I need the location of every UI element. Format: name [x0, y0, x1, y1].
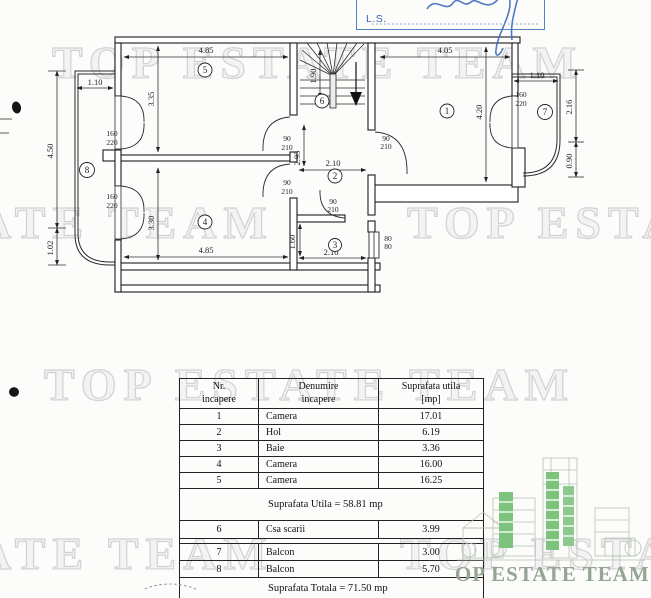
- room-number: 3: [333, 240, 338, 250]
- cell-name: Camera: [258, 409, 378, 424]
- cell-name: Csa scarii: [258, 521, 378, 538]
- table-header-row: Nr.incapere Denumireincapere Suprafata u…: [180, 378, 483, 409]
- cell-name: Hol: [258, 425, 378, 440]
- floor-plan: 4.85 4.05 1.10 1.10 4.85 2.10 2.10 3.35 …: [0, 0, 651, 350]
- total-text: Suprafata Totala = 71.50 mp: [268, 583, 388, 594]
- room-number: 5: [203, 65, 208, 75]
- header-denumire: Denumireincapere: [258, 379, 378, 408]
- cell-nr: 3: [180, 441, 258, 456]
- window-size-label: 220: [515, 99, 527, 108]
- cell-nr: 1: [180, 409, 258, 424]
- dim-label: 4.50: [45, 144, 55, 159]
- door-size-label: 90: [283, 134, 291, 143]
- dim-label: 1.10: [530, 70, 545, 80]
- total-band: Suprafata Totala = 71.50 mp: [180, 578, 483, 598]
- dim-label: 4.85: [199, 45, 214, 55]
- table-row: 1 Camera 17.01: [180, 409, 483, 425]
- room-number: 8: [85, 165, 90, 175]
- dim-label: 1.02: [45, 241, 55, 256]
- dim-label: 4.05: [438, 45, 453, 55]
- ls-stamp-box: L.S.: [356, 0, 545, 30]
- window-size-label: 160: [106, 129, 118, 138]
- door-size-label: 210: [380, 142, 392, 151]
- table-row: 7 Balcon 3.00: [180, 543, 483, 561]
- door-size-label: 210: [281, 187, 293, 196]
- dimension-labels: 4.85 4.05 1.10 1.10 4.85 2.10 2.10 3.35 …: [45, 45, 574, 257]
- room-number: 6: [320, 96, 325, 106]
- window-openings: [115, 96, 518, 258]
- room-number: 2: [333, 171, 338, 181]
- cell-nr: 7: [180, 544, 258, 560]
- cell-nr: 5: [180, 473, 258, 488]
- small-window-80x80: [369, 232, 379, 258]
- door-size-label: 210: [327, 205, 339, 214]
- dim-label: 0.90: [564, 154, 574, 169]
- cell-name: Balcon: [258, 544, 378, 560]
- cell-name: Camera: [258, 473, 378, 488]
- logo-wordmark: TOP ESTATE TEAM: [455, 562, 650, 586]
- cell-nr: 4: [180, 457, 258, 472]
- cell-name: Balcon: [258, 561, 378, 577]
- cell-nr: 2: [180, 425, 258, 440]
- header-suprafata: Suprafata utila[mp]: [378, 379, 483, 408]
- table-row: 8 Balcon 5.70: [180, 561, 483, 578]
- area-table: Nr.incapere Denumireincapere Suprafata u…: [179, 378, 484, 598]
- window-size-label: 220: [106, 138, 118, 147]
- door-size-label: 210: [281, 143, 293, 152]
- opening-size-labels: 160 220 160 220 160 220 90 210 90 210 90…: [106, 90, 527, 251]
- cell-area: 6.19: [378, 425, 483, 440]
- dim-label: 2.10: [326, 158, 341, 168]
- dim-label: 4.20: [474, 105, 484, 120]
- header-nr: Nr.incapere: [180, 379, 258, 408]
- dim-label: 2.95: [292, 151, 302, 166]
- dim-label: 4.85: [199, 245, 214, 255]
- table-row: 5 Camera 16.25: [180, 473, 483, 489]
- room-number: 1: [445, 106, 450, 116]
- window-size-label: 80: [384, 242, 392, 251]
- table-row: 3 Baie 3.36: [180, 441, 483, 457]
- door-size-label: 90: [283, 178, 291, 187]
- dim-label: 3.30: [146, 216, 156, 231]
- table-row: 2 Hol 6.19: [180, 425, 483, 441]
- agency-logo: TOP ESTATE TEAM: [455, 450, 651, 590]
- window-size-label: 160: [106, 192, 118, 201]
- window-size-label: 160: [515, 90, 527, 99]
- room-number: 7: [543, 107, 548, 117]
- cell-name: Camera: [258, 457, 378, 472]
- dim-label: 3.35: [146, 92, 156, 107]
- dim-label: 1.60: [287, 235, 297, 250]
- table-row: 6 Csa scarii 3.99: [180, 520, 483, 539]
- cell-nr: 8: [180, 561, 258, 577]
- dim-label: 1.90: [308, 69, 318, 84]
- room-number: 4: [203, 217, 208, 227]
- subtotal-band: Suprafata Utila = 58.81 mp: [180, 489, 483, 520]
- dim-label: 2.16: [564, 100, 574, 115]
- cell-area: 17.01: [378, 409, 483, 424]
- ink-blob-middle: [8, 387, 19, 398]
- cell-name: Baie: [258, 441, 378, 456]
- window-size-label: 220: [106, 201, 118, 210]
- balcony-rows: 7 Balcon 3.00 8 Balcon 5.70: [180, 543, 483, 578]
- table-row: 4 Camera 16.00: [180, 457, 483, 473]
- subtotal-text: Suprafata Utila = 58.81 mp: [268, 499, 383, 510]
- scanned-floor-plan-document: { "stamp": { "ls": "L.S." }, "watermarks…: [0, 0, 651, 590]
- ls-label: L.S.: [366, 13, 387, 25]
- cell-nr: 6: [180, 521, 258, 538]
- dim-label: 1.10: [88, 77, 103, 87]
